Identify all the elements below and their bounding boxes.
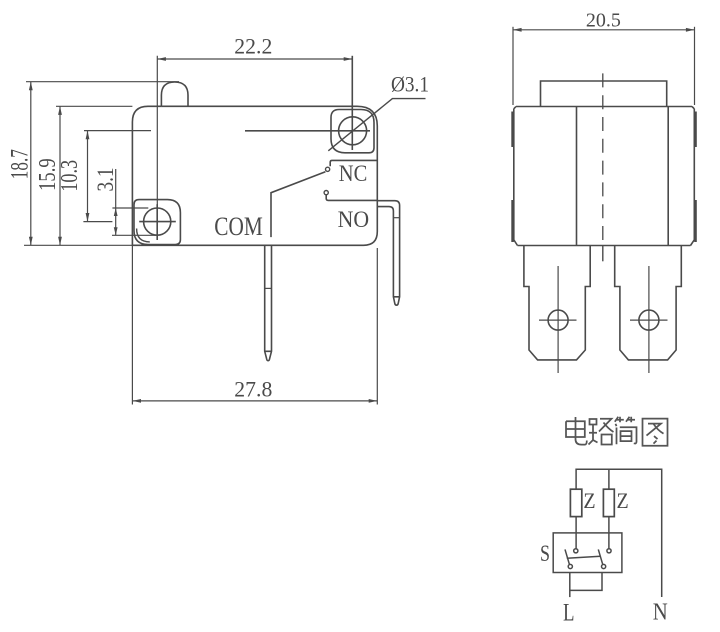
svg-text:20.5: 20.5 [586,9,621,31]
svg-text:Z: Z [583,488,595,513]
svg-text:22.2: 22.2 [234,34,272,59]
svg-text:Ø3.1: Ø3.1 [391,72,429,97]
svg-text:COM: COM [214,212,262,241]
svg-text:N: N [653,600,668,626]
svg-text:L: L [563,600,575,627]
svg-text:10.3: 10.3 [57,160,83,192]
svg-text:3.1: 3.1 [93,168,118,192]
svg-text:NC: NC [339,161,368,186]
svg-text:Z: Z [617,488,629,513]
svg-text:18.7: 18.7 [7,149,34,179]
svg-text:NO: NO [338,207,370,232]
svg-text:27.8: 27.8 [234,377,272,402]
svg-text:S: S [540,541,550,566]
